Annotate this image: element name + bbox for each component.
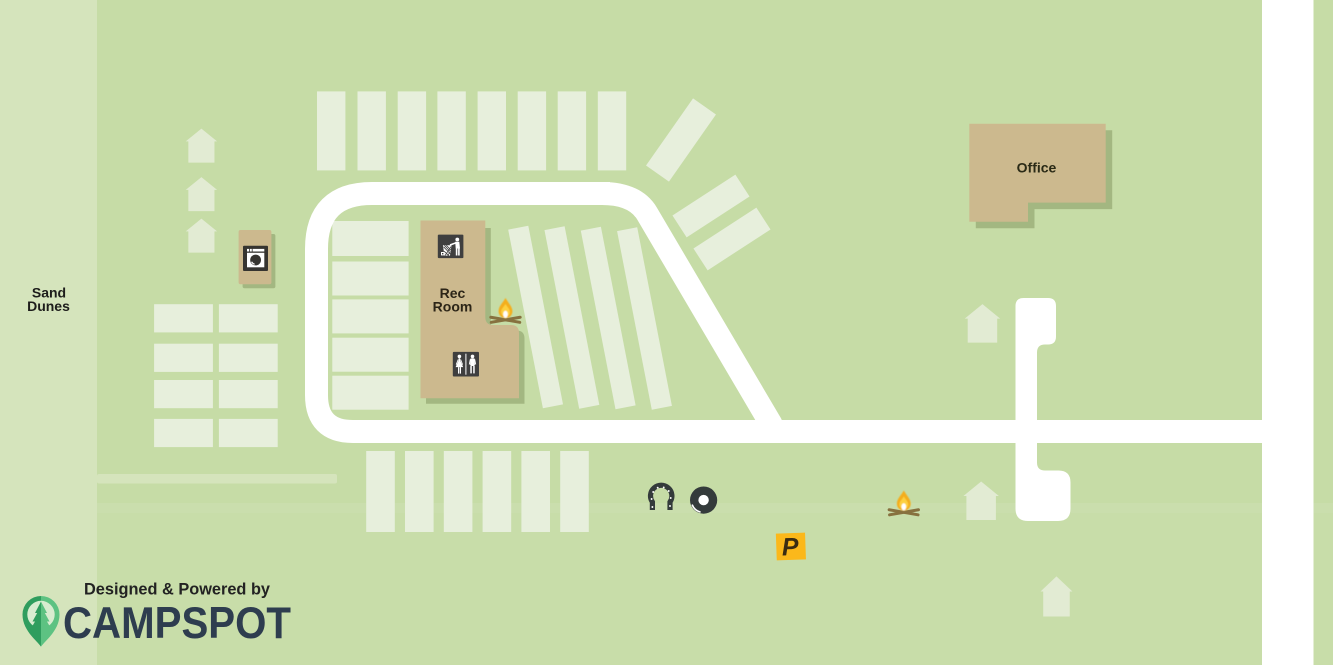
svg-text:Room: Room	[433, 299, 473, 315]
svg-text:Designed & Powered by: Designed & Powered by	[84, 581, 271, 599]
svg-text:Dunes: Dunes	[27, 298, 70, 314]
svg-text:P: P	[781, 533, 799, 562]
svg-text:Office: Office	[1017, 160, 1057, 176]
svg-text:CAMPSPOT: CAMPSPOT	[63, 599, 291, 648]
